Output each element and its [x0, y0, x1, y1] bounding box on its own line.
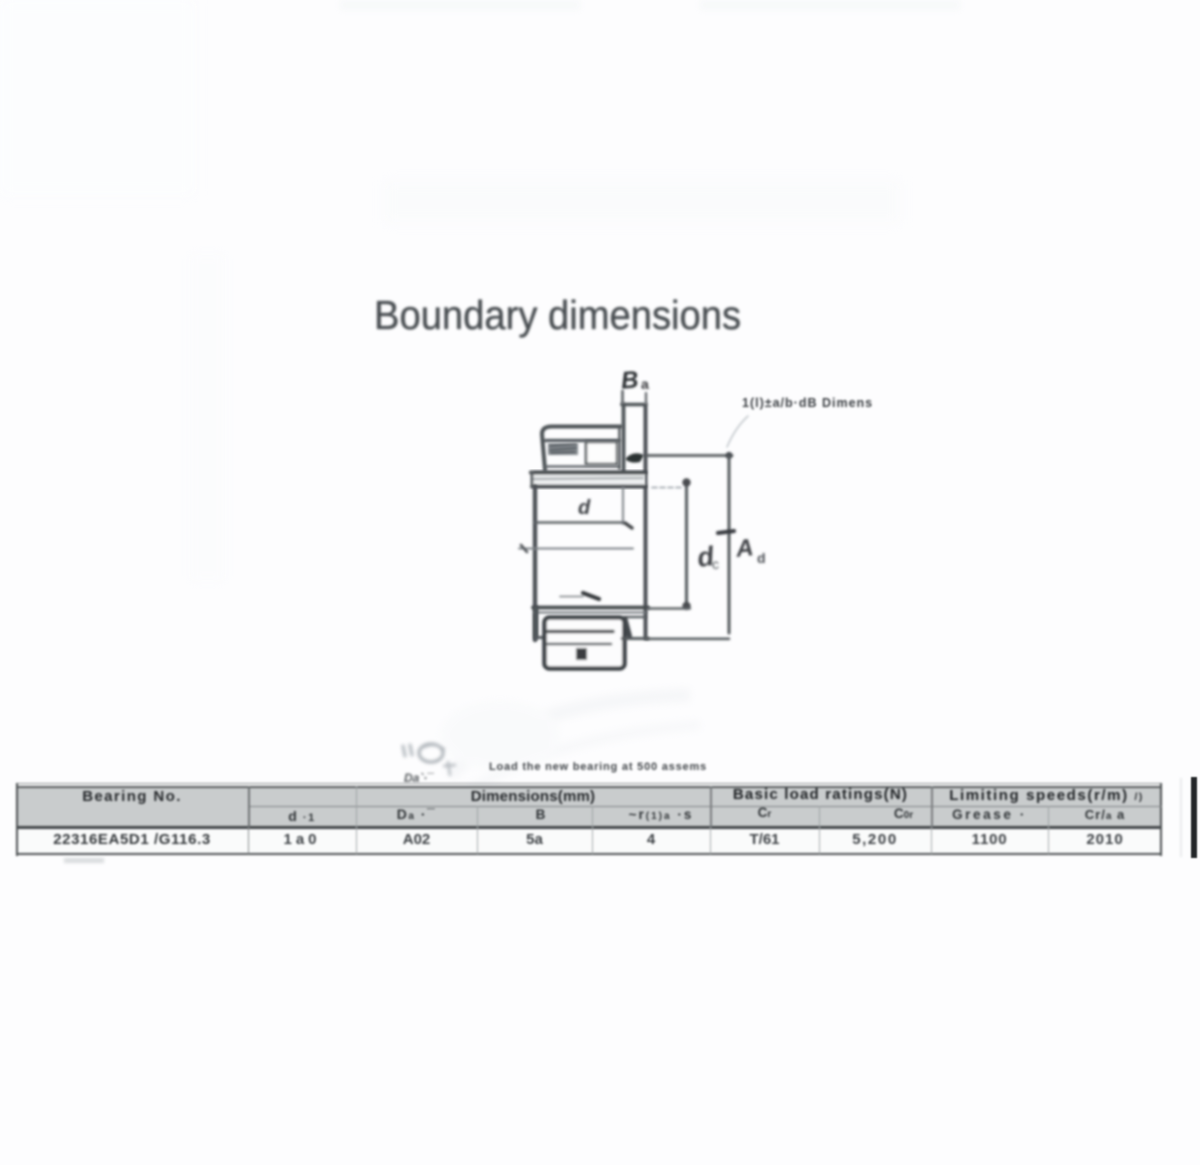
svg-text:d: d	[757, 550, 766, 566]
svg-text:A: A	[734, 534, 755, 563]
svg-text:d: d	[578, 497, 591, 519]
svg-text:c: c	[712, 556, 719, 572]
svg-text:a: a	[641, 376, 649, 392]
